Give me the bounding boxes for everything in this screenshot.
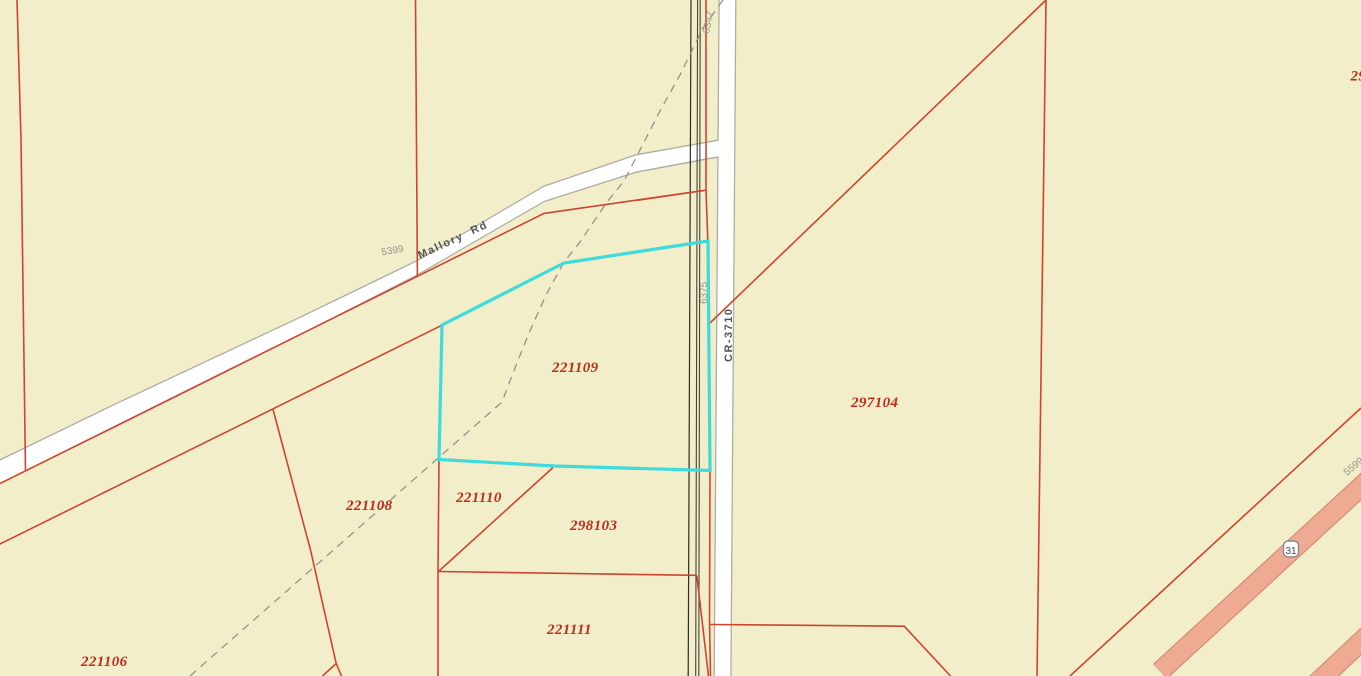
svg-text:298103: 298103 [569, 518, 618, 534]
svg-text:297104: 297104 [850, 395, 899, 411]
svg-text:31: 31 [1285, 546, 1297, 557]
svg-text:221108: 221108 [345, 498, 393, 514]
svg-text:6375: 6375 [699, 281, 710, 304]
svg-text:221109: 221109 [551, 360, 599, 376]
svg-text:221110: 221110 [455, 490, 502, 506]
svg-text:221111: 221111 [546, 622, 592, 638]
svg-text:298: 298 [1350, 69, 1361, 85]
svg-text:CR-3710: CR-3710 [723, 307, 735, 362]
svg-text:221106: 221106 [80, 654, 128, 670]
